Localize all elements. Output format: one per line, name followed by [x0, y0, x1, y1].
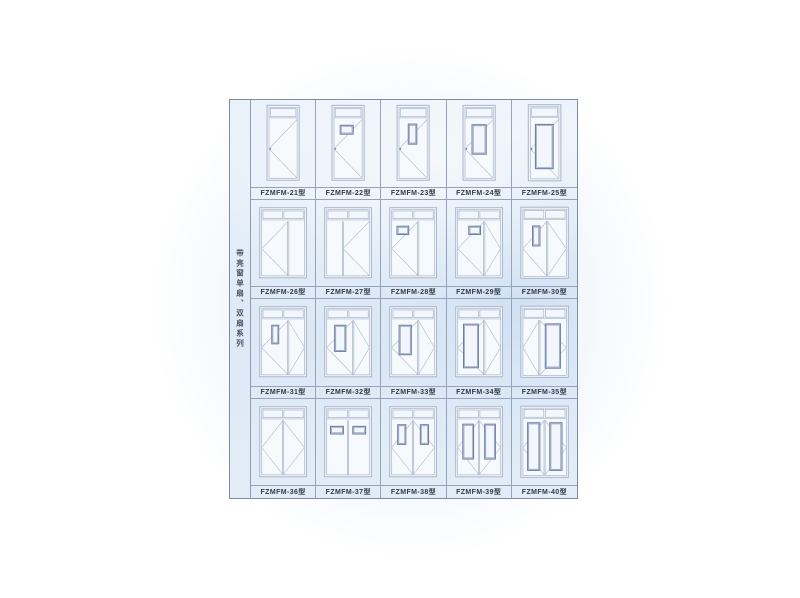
door-type-label: FZMFM-28型	[381, 286, 446, 299]
door-type-label: FZMFM-29型	[447, 286, 512, 299]
door-diagram	[381, 299, 445, 386]
door-diagram	[316, 399, 380, 486]
door-diagram	[447, 100, 511, 187]
door-cell	[381, 200, 446, 287]
door-cell	[447, 100, 512, 187]
door-diagram	[512, 200, 577, 287]
door-diagram	[251, 100, 315, 187]
series-title-column: 带亮窗单扇、双扇系列	[230, 100, 251, 498]
door-type-label: FZMFM-37型	[316, 485, 381, 498]
door-cell	[512, 399, 577, 486]
door-cell	[512, 100, 577, 187]
door-type-label: FZMFM-22型	[316, 187, 381, 200]
door-cell	[512, 200, 577, 287]
door-diagram	[316, 200, 380, 287]
door-cell	[381, 299, 446, 386]
door-diagram	[447, 200, 511, 287]
door-cell	[381, 399, 446, 486]
door-diagram	[381, 200, 445, 287]
catalog-page: { "series": { "title": "带亮窗单扇、双扇系列" }, "…	[0, 0, 800, 598]
door-diagram	[251, 299, 315, 386]
door-cell	[447, 200, 512, 287]
door-diagram	[316, 299, 380, 386]
door-type-label: FZMFM-40型	[512, 485, 577, 498]
door-type-label: FZMFM-35型	[512, 386, 577, 399]
door-cell	[447, 399, 512, 486]
door-diagram	[251, 200, 315, 287]
door-catalog-table: 带亮窗单扇、双扇系列 FZMFM-21型FZMFM-22型FZMFM-23型FZ…	[229, 99, 578, 499]
door-cell	[251, 399, 316, 486]
door-diagram	[251, 399, 315, 486]
door-type-label: FZMFM-33型	[381, 386, 446, 399]
door-type-label: FZMFM-32型	[316, 386, 381, 399]
door-type-label: FZMFM-25型	[512, 187, 577, 200]
door-diagram	[316, 100, 380, 187]
door-cell	[316, 100, 381, 187]
door-cell	[447, 299, 512, 386]
door-type-label: FZMFM-21型	[251, 187, 316, 200]
door-type-label: FZMFM-34型	[447, 386, 512, 399]
door-cell	[251, 200, 316, 287]
door-diagram	[512, 299, 577, 386]
door-cell	[512, 299, 577, 386]
door-type-label: FZMFM-27型	[316, 286, 381, 299]
door-diagram	[381, 100, 445, 187]
door-type-label: FZMFM-31型	[251, 386, 316, 399]
door-diagram	[381, 399, 445, 486]
door-cell	[316, 399, 381, 486]
door-diagram	[447, 299, 511, 386]
door-cell	[251, 299, 316, 386]
door-diagram	[447, 399, 511, 486]
door-cell	[381, 100, 446, 187]
door-cell	[251, 100, 316, 187]
door-type-label: FZMFM-24型	[447, 187, 512, 200]
door-type-label: FZMFM-23型	[381, 187, 446, 200]
door-type-label: FZMFM-38型	[381, 485, 446, 498]
door-grid: FZMFM-21型FZMFM-22型FZMFM-23型FZMFM-24型FZMF…	[251, 100, 577, 498]
series-title: 带亮窗单扇、双扇系列	[235, 249, 246, 349]
door-type-label: FZMFM-39型	[447, 485, 512, 498]
door-cell	[316, 200, 381, 287]
door-diagram	[512, 100, 577, 187]
door-diagram	[512, 399, 577, 486]
door-cell	[316, 299, 381, 386]
door-type-label: FZMFM-30型	[512, 286, 577, 299]
door-type-label: FZMFM-36型	[251, 485, 316, 498]
door-type-label: FZMFM-26型	[251, 286, 316, 299]
